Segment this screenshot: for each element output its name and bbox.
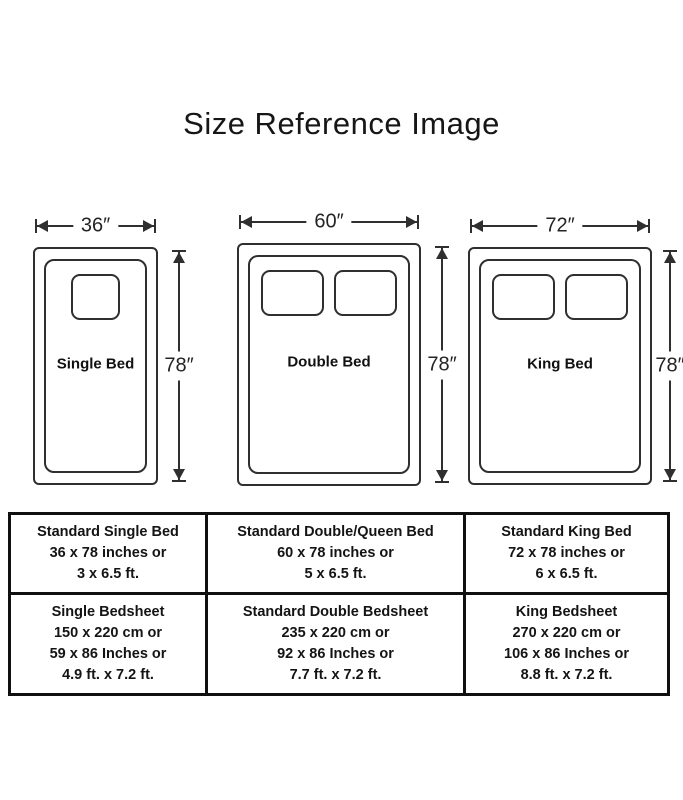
table-row-beds: Standard Single Bed 36 x 78 inches or 3 … [10,514,669,594]
width-dimension-king: 72″ [470,216,650,236]
cell-line: 3 x 6.5 ft. [15,564,201,585]
arrowhead-right-icon [406,216,417,228]
bed-label-double: Double Bed [239,354,419,371]
table-row-bedsheets: Single Bedsheet 150 x 220 cm or 59 x 86 … [10,594,669,695]
height-dimension-label-king: 78″ [654,352,683,381]
height-dimension-single: 78″ [169,250,189,482]
cell-king-bedsheet: King Bedsheet 270 x 220 cm or 106 x 86 I… [465,594,669,695]
cell-line: 92 x 86 Inches or [212,644,459,665]
cell-double-bedsheet: Standard Double Bedsheet 235 x 220 cm or… [207,594,465,695]
pillow [565,274,628,320]
bed-frame-king: King Bed [468,247,652,485]
cell-line: 72 x 78 inches or [470,543,663,564]
pillow [71,274,120,320]
cell-line: 5 x 6.5 ft. [212,564,459,585]
arrowhead-right-icon [637,220,648,232]
dimension-cap [154,219,156,233]
pillow [492,274,555,320]
cell-line: Standard Double/Queen Bed [212,522,459,543]
arrowhead-down-icon [173,469,185,480]
cell-line: 36 x 78 inches or [15,543,201,564]
bed-diagram-king: 72″ King Bed 78″ [468,247,652,485]
pillow-row [250,270,408,316]
width-dimension-double: 60″ [239,212,419,232]
width-dimension-single: 36″ [35,216,156,236]
page-title: Size Reference Image [0,106,683,142]
bed-frame-double: Double Bed [237,243,421,486]
bed-label-king: King Bed [470,355,650,372]
cell-standard-double-bed: Standard Double/Queen Bed 60 x 78 inches… [207,514,465,594]
cell-single-bedsheet: Single Bedsheet 150 x 220 cm or 59 x 86 … [10,594,207,695]
height-dimension-label-single: 78″ [163,352,194,381]
arrowhead-down-icon [436,470,448,481]
height-dimension-label-double: 78″ [426,350,457,379]
cell-line: 7.7 ft. x 7.2 ft. [212,665,459,686]
pillow-row [481,274,639,320]
arrowhead-down-icon [664,469,676,480]
cell-line: Single Bedsheet [15,602,201,623]
cell-line: 235 x 220 cm or [212,623,459,644]
bed-label-single: Single Bed [35,355,156,372]
pillow-row [46,274,145,320]
cell-standard-single-bed: Standard Single Bed 36 x 78 inches or 3 … [10,514,207,594]
cell-line: 150 x 220 cm or [15,623,201,644]
cell-line: 106 x 86 Inches or [470,644,663,665]
pillow [261,270,324,316]
cell-line: Standard Single Bed [15,522,201,543]
bed-diagram-double: 60″ Double Bed 78″ [237,243,421,486]
dimension-cap [417,215,419,229]
cell-line: Standard King Bed [470,522,663,543]
bed-frame-single: Single Bed [33,247,158,485]
width-dimension-label-single: 36″ [73,215,118,238]
cell-line: 8.8 ft. x 7.2 ft. [470,665,663,686]
bed-diagram-single: 36″ Single Bed 78″ [33,247,158,485]
width-dimension-label-king: 72″ [537,215,582,238]
height-dimension-king: 78″ [660,250,680,482]
cell-line: 4.9 ft. x 7.2 ft. [15,665,201,686]
cell-line: Standard Double Bedsheet [212,602,459,623]
cell-line: 6 x 6.5 ft. [470,564,663,585]
dimension-cap [648,219,650,233]
height-dimension-double: 78″ [432,246,452,483]
dimension-cap [663,480,677,482]
pillow [334,270,397,316]
width-dimension-label-double: 60″ [306,211,351,234]
cell-line: 59 x 86 Inches or [15,644,201,665]
cell-line: 270 x 220 cm or [470,623,663,644]
cell-line: 60 x 78 inches or [212,543,459,564]
dimension-cap [435,481,449,483]
cell-line: King Bedsheet [470,602,663,623]
size-reference-page: Size Reference Image 36″ Single Bed 7 [0,0,683,800]
arrowhead-right-icon [143,220,154,232]
cell-standard-king-bed: Standard King Bed 72 x 78 inches or 6 x … [465,514,669,594]
size-table: Standard Single Bed 36 x 78 inches or 3 … [8,512,670,696]
dimension-cap [172,480,186,482]
